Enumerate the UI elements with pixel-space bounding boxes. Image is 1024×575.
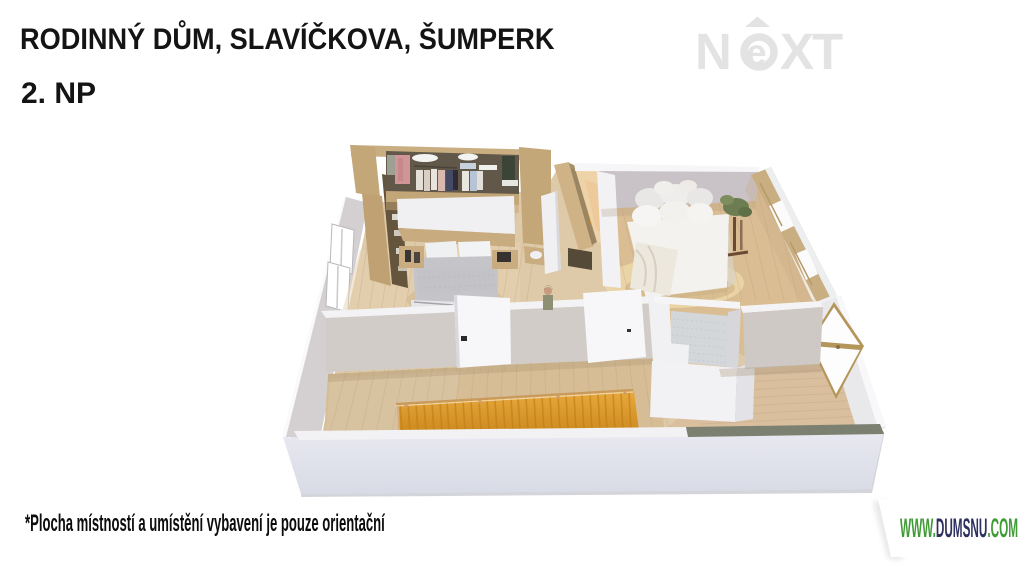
svg-text:X: X [780,23,814,80]
svg-text:T: T [812,23,843,80]
svg-text:N: N [695,23,732,80]
svg-text:WWW.DUMSNU.COM: WWW.DUMSNU.COM [900,513,1018,543]
svg-text:e: e [746,32,767,73]
